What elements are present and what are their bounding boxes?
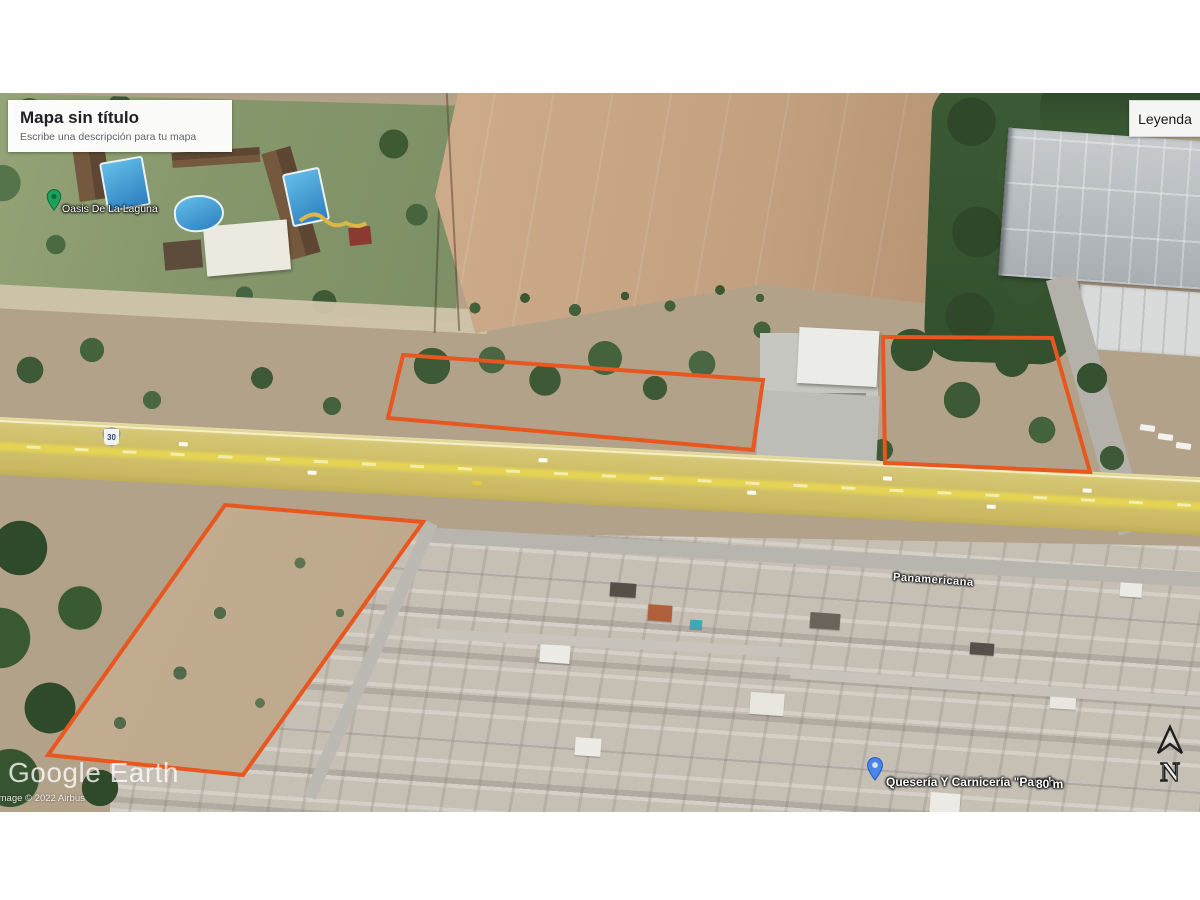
white-building	[203, 219, 291, 276]
map-title: Mapa sin título	[20, 108, 220, 128]
imagery-copyright: Image © 2022 Airbus	[0, 793, 85, 804]
green-place-pin[interactable]	[46, 189, 62, 211]
north-compass-icon[interactable]: N	[1150, 723, 1190, 789]
vehicle	[883, 476, 892, 480]
google-earth-watermark: Google Earth	[8, 757, 179, 789]
rooftop	[610, 582, 637, 598]
gas-station-canopy	[797, 327, 880, 387]
rooftop	[970, 642, 995, 656]
rooftop	[809, 612, 840, 630]
map-description-placeholder: Escribe una descripción para tu mapa	[20, 131, 220, 143]
place-label: Oasis De La Laguna	[62, 203, 158, 215]
scale-label: 80 m	[1036, 777, 1063, 791]
blue-place-pin[interactable]	[866, 757, 884, 781]
vehicle	[987, 505, 996, 509]
satellite-map-canvas[interactable]: Oasis De La Laguna Panamericana Quesería…	[0, 93, 1200, 812]
backyard-pool	[690, 620, 703, 630]
vehicle	[747, 491, 756, 495]
rooftop	[647, 604, 672, 622]
map-title-card[interactable]: Mapa sin título Escribe una descripción …	[8, 100, 232, 152]
rooftop	[348, 226, 372, 246]
rooftop	[749, 692, 784, 716]
rooftop	[1120, 582, 1143, 598]
rooftop	[574, 737, 601, 757]
vehicle	[472, 481, 481, 485]
vehicle	[538, 458, 547, 462]
rooftop	[929, 792, 960, 812]
highway-number: 30	[107, 433, 116, 442]
vehicle	[307, 470, 316, 474]
rooftop	[163, 239, 203, 270]
vehicle	[179, 442, 188, 446]
factory-building	[998, 128, 1200, 291]
legend-button[interactable]: Leyenda	[1129, 100, 1200, 137]
poi-label: Quesería Y Carnicería "Panch	[886, 775, 1055, 789]
compass-letter: N	[1160, 757, 1180, 787]
vehicle	[1083, 488, 1092, 492]
